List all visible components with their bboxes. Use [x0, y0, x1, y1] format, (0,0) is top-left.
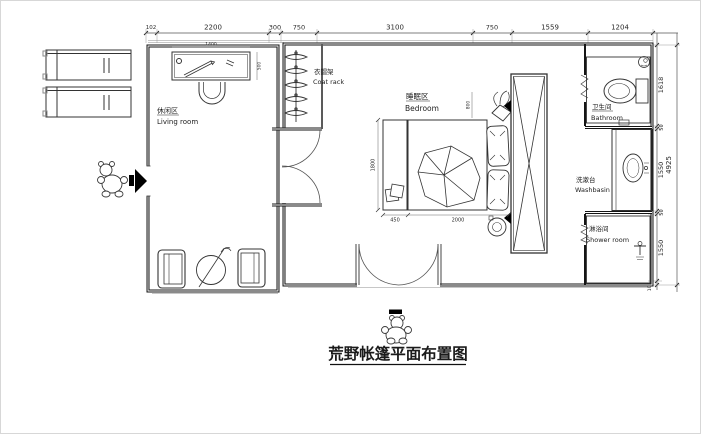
dim-top-3: 750	[293, 24, 305, 32]
wardrobe	[504, 74, 547, 253]
vent-icon	[639, 57, 650, 68]
outside-loungers	[43, 50, 131, 117]
floor-plan-page: 102 2200 300 750 3100 750 1559 1204 1618…	[0, 0, 701, 434]
bathroom-label-zh: 卫生间	[592, 102, 612, 111]
coat-rack-label-zh: 衣帽架	[314, 67, 334, 76]
dim-top-6: 1559	[541, 24, 559, 32]
bedroom-label-zh: 睡眠区	[406, 92, 429, 101]
plan-title: 荒野帐篷平面布置图	[327, 344, 468, 365]
top-dimensions: 102 2200 300 750 3100 750 1559 1204	[144, 24, 678, 44]
cube-object	[385, 184, 404, 202]
living-room-label-en: Living room	[157, 118, 198, 126]
dim-bed-platform: 450	[390, 218, 400, 224]
dim-top-7: 1204	[611, 24, 629, 32]
dim-top-0: 102	[146, 25, 157, 31]
living-room-label-zh: 休闲区	[157, 106, 178, 115]
south-bear-icon	[382, 316, 412, 345]
dim-top-2: 300	[269, 24, 281, 32]
bath-suite-walls	[581, 44, 652, 285]
bedroom: 睡眠区 Bedroom	[371, 74, 548, 253]
desk	[172, 52, 250, 80]
dim-top-4: 3100	[386, 24, 404, 32]
sink-icon	[623, 154, 649, 182]
dim-bed-width: 2000	[452, 218, 465, 224]
entry-bear-icon	[98, 162, 128, 198]
washbasin-counter	[612, 130, 652, 211]
shower-label-en: Shower room	[586, 236, 629, 244]
dim-plant-nook: 800	[466, 101, 472, 110]
dim-right-4: 1550	[657, 240, 665, 257]
stool	[488, 216, 506, 236]
dim-right-3: 50	[659, 209, 665, 215]
coat-rack	[285, 50, 307, 122]
construction-lines	[148, 41, 653, 294]
living-room: 1400 500 休闲区 Living room	[147, 42, 279, 292]
coat-rack-label-en: Coat rack	[313, 78, 344, 86]
round-table	[197, 248, 232, 288]
armchair-left	[158, 250, 185, 288]
shower-label-zh: 淋浴间	[589, 224, 609, 233]
dim-desk-width: 1400	[205, 42, 217, 48]
desk-chair	[199, 82, 225, 104]
floor-plan-svg: 102 2200 300 750 3100 750 1559 1204 1618…	[0, 0, 701, 434]
entry-arrow-icon	[129, 169, 147, 193]
entrance-door	[356, 244, 441, 285]
bedroom-label-en: Bedroom	[405, 104, 439, 113]
dim-top-5: 750	[486, 24, 498, 32]
dim-right-1: 50	[659, 124, 665, 130]
plan-title-text: 荒野帐篷平面布置图	[327, 344, 468, 363]
dim-right-2: 1550	[657, 162, 665, 179]
dim-right-total: 4925	[665, 156, 673, 174]
toilet-icon	[604, 79, 648, 103]
dim-bed-length: 1800	[371, 159, 377, 172]
washbasin-label-zh: 洗漱台	[576, 175, 596, 184]
armchair-right	[238, 249, 265, 287]
shower-head-icon	[634, 242, 646, 260]
dim-right-0: 1618	[657, 77, 665, 94]
north-arrow-bar	[389, 310, 402, 315]
bathroom-label-en: Bathroom	[591, 114, 623, 122]
washbasin-label-en: Washbasin	[575, 186, 610, 194]
dim-desk-depth: 500	[257, 62, 263, 71]
dim-top-1: 2200	[204, 24, 222, 32]
blanket	[418, 146, 480, 207]
pillows	[486, 125, 509, 210]
